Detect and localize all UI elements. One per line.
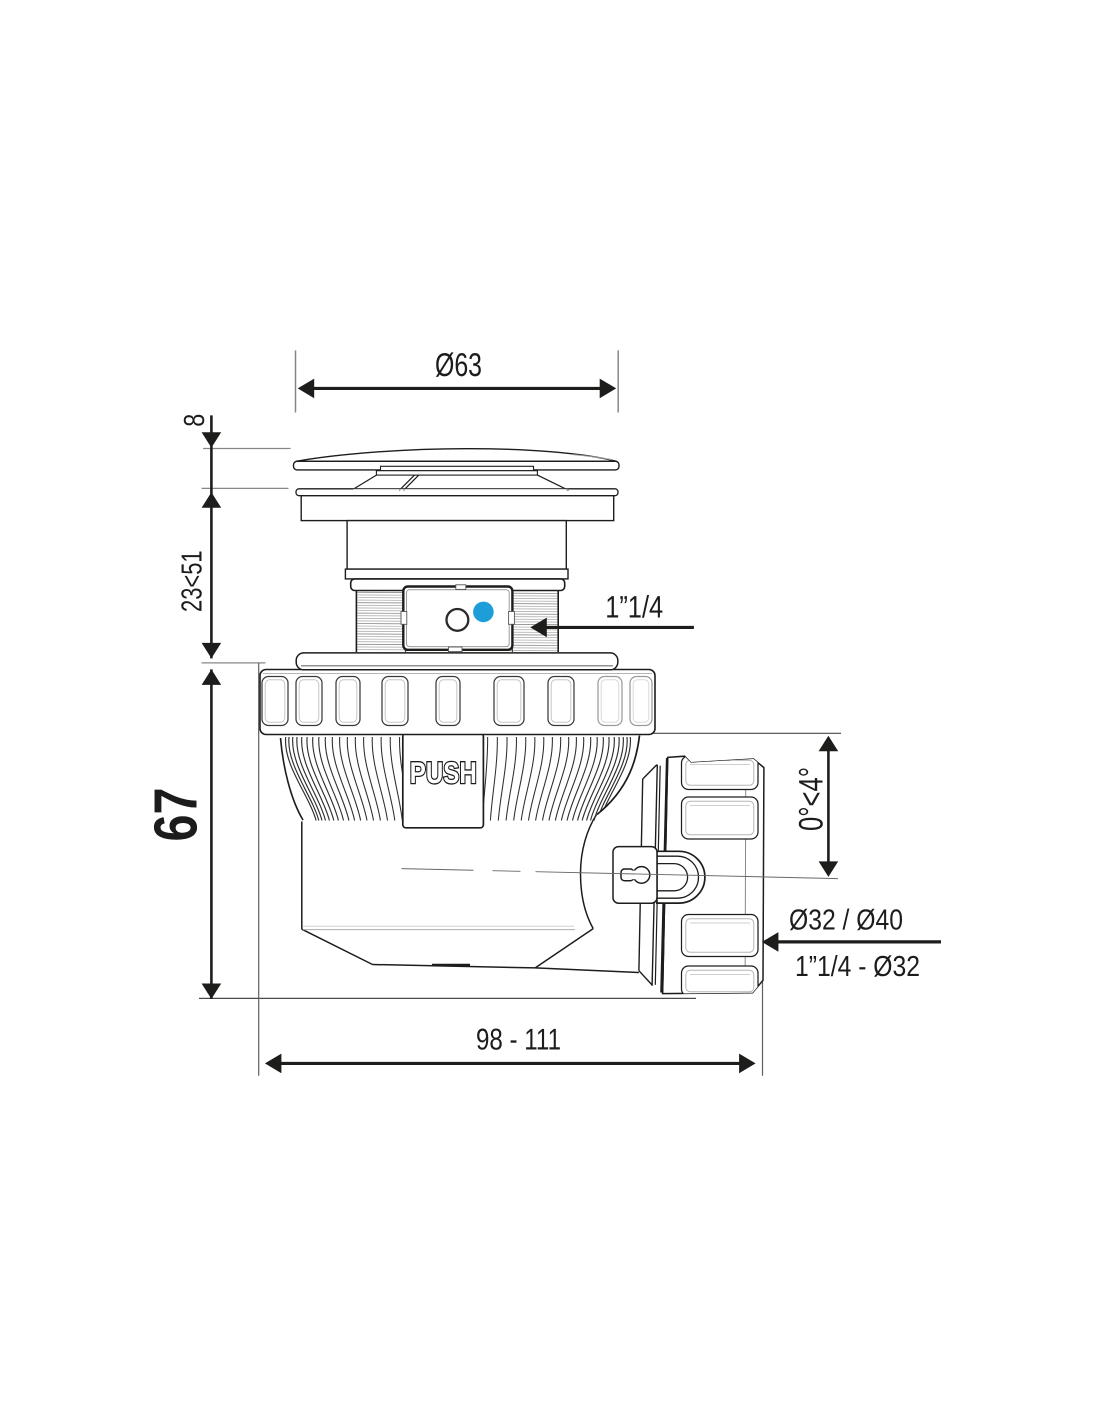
svg-text:8: 8 [179, 414, 211, 427]
svg-text:23<51: 23<51 [176, 550, 208, 612]
svg-text:Ø63: Ø63 [435, 346, 482, 383]
svg-text:98 - 111: 98 - 111 [476, 1024, 561, 1057]
svg-text:1”1/4 - Ø32: 1”1/4 - Ø32 [795, 951, 920, 983]
svg-text:1”1/4: 1”1/4 [605, 589, 663, 624]
svg-text:0°<4°: 0°<4° [792, 767, 830, 831]
svg-text:Ø32 / Ø40: Ø32 / Ø40 [789, 904, 903, 936]
svg-text:PUSH: PUSH [410, 757, 477, 790]
svg-text:67: 67 [142, 788, 210, 842]
